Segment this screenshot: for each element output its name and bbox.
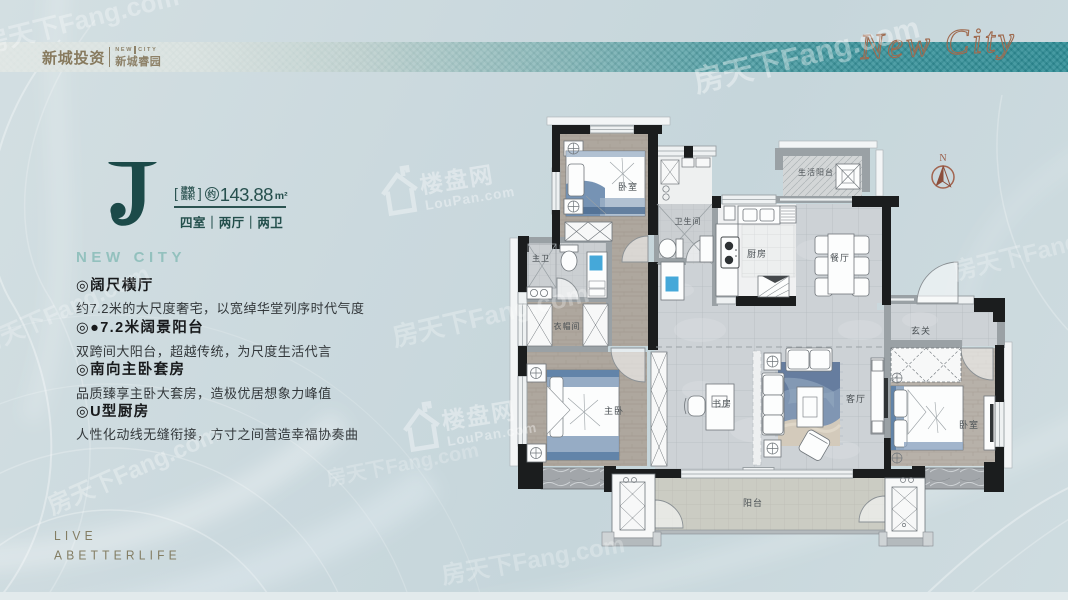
svg-text:卧室: 卧室 xyxy=(959,419,979,430)
svg-text:厨房: 厨房 xyxy=(747,248,767,259)
svg-text:书房: 书房 xyxy=(712,398,732,409)
svg-text:阳台: 阳台 xyxy=(743,497,763,508)
svg-text:N: N xyxy=(939,153,946,164)
svg-text:衣帽间: 衣帽间 xyxy=(554,321,581,331)
svg-text:生活阳台: 生活阳台 xyxy=(798,167,834,177)
svg-text:客厅: 客厅 xyxy=(846,393,866,404)
svg-text:主卧: 主卧 xyxy=(604,405,624,416)
svg-text:玄关: 玄关 xyxy=(911,325,931,336)
svg-text:卧室: 卧室 xyxy=(618,181,638,192)
svg-text:卫生间: 卫生间 xyxy=(675,216,702,226)
svg-text:主卫: 主卫 xyxy=(532,253,550,263)
svg-text:餐厅: 餐厅 xyxy=(830,252,850,263)
